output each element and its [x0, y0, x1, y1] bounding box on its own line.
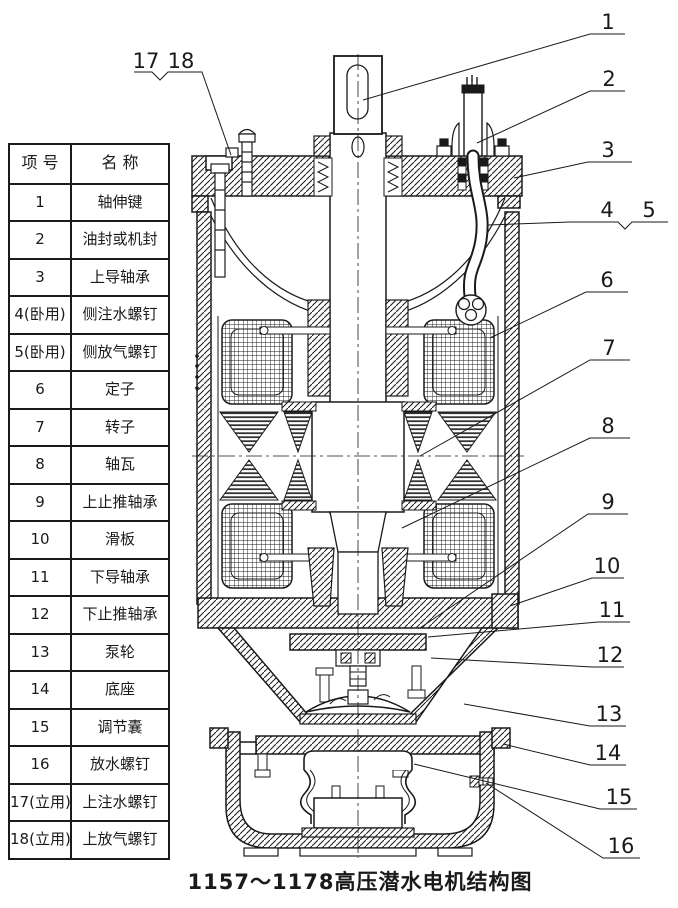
- callout-16: 16: [608, 834, 635, 858]
- motor-structure-diagram: 1 2 3 4 5 6 7 8 9 10 11 12 13 14 15 16 1…: [0, 0, 678, 908]
- callout-7: 7: [602, 336, 615, 360]
- callout-6: 6: [600, 268, 613, 292]
- callout-8: 8: [601, 414, 614, 438]
- callout-17: 17: [133, 49, 160, 73]
- callout-3: 3: [601, 138, 614, 162]
- structure-drawing-page: 项 号 名 称 1轴伸键 2油封或机封 3上导轴承 4(卧用)侧注水螺钉 5(卧…: [0, 0, 678, 908]
- leader-17-18: [134, 72, 231, 155]
- leader-15: [414, 764, 637, 809]
- leader-3: [514, 162, 632, 178]
- callout-18: 18: [168, 49, 195, 73]
- callout-15: 15: [606, 785, 633, 809]
- leader-1: [363, 34, 625, 100]
- callout-1: 1: [601, 10, 614, 34]
- callout-10: 10: [594, 554, 621, 578]
- callout-14: 14: [595, 741, 622, 765]
- callout-13: 13: [596, 702, 623, 726]
- callout-12: 12: [597, 643, 624, 667]
- callout-2: 2: [602, 67, 615, 91]
- callout-11: 11: [599, 598, 626, 622]
- power-cable: [452, 75, 494, 325]
- callout-5: 5: [642, 198, 655, 222]
- shaft-keyway: [347, 65, 368, 119]
- drawing-title: 1157～1178高压潜水电机结构图: [175, 866, 545, 896]
- callout-4: 4: [600, 198, 613, 222]
- leader-2: [477, 91, 625, 143]
- callout-9: 9: [601, 490, 614, 514]
